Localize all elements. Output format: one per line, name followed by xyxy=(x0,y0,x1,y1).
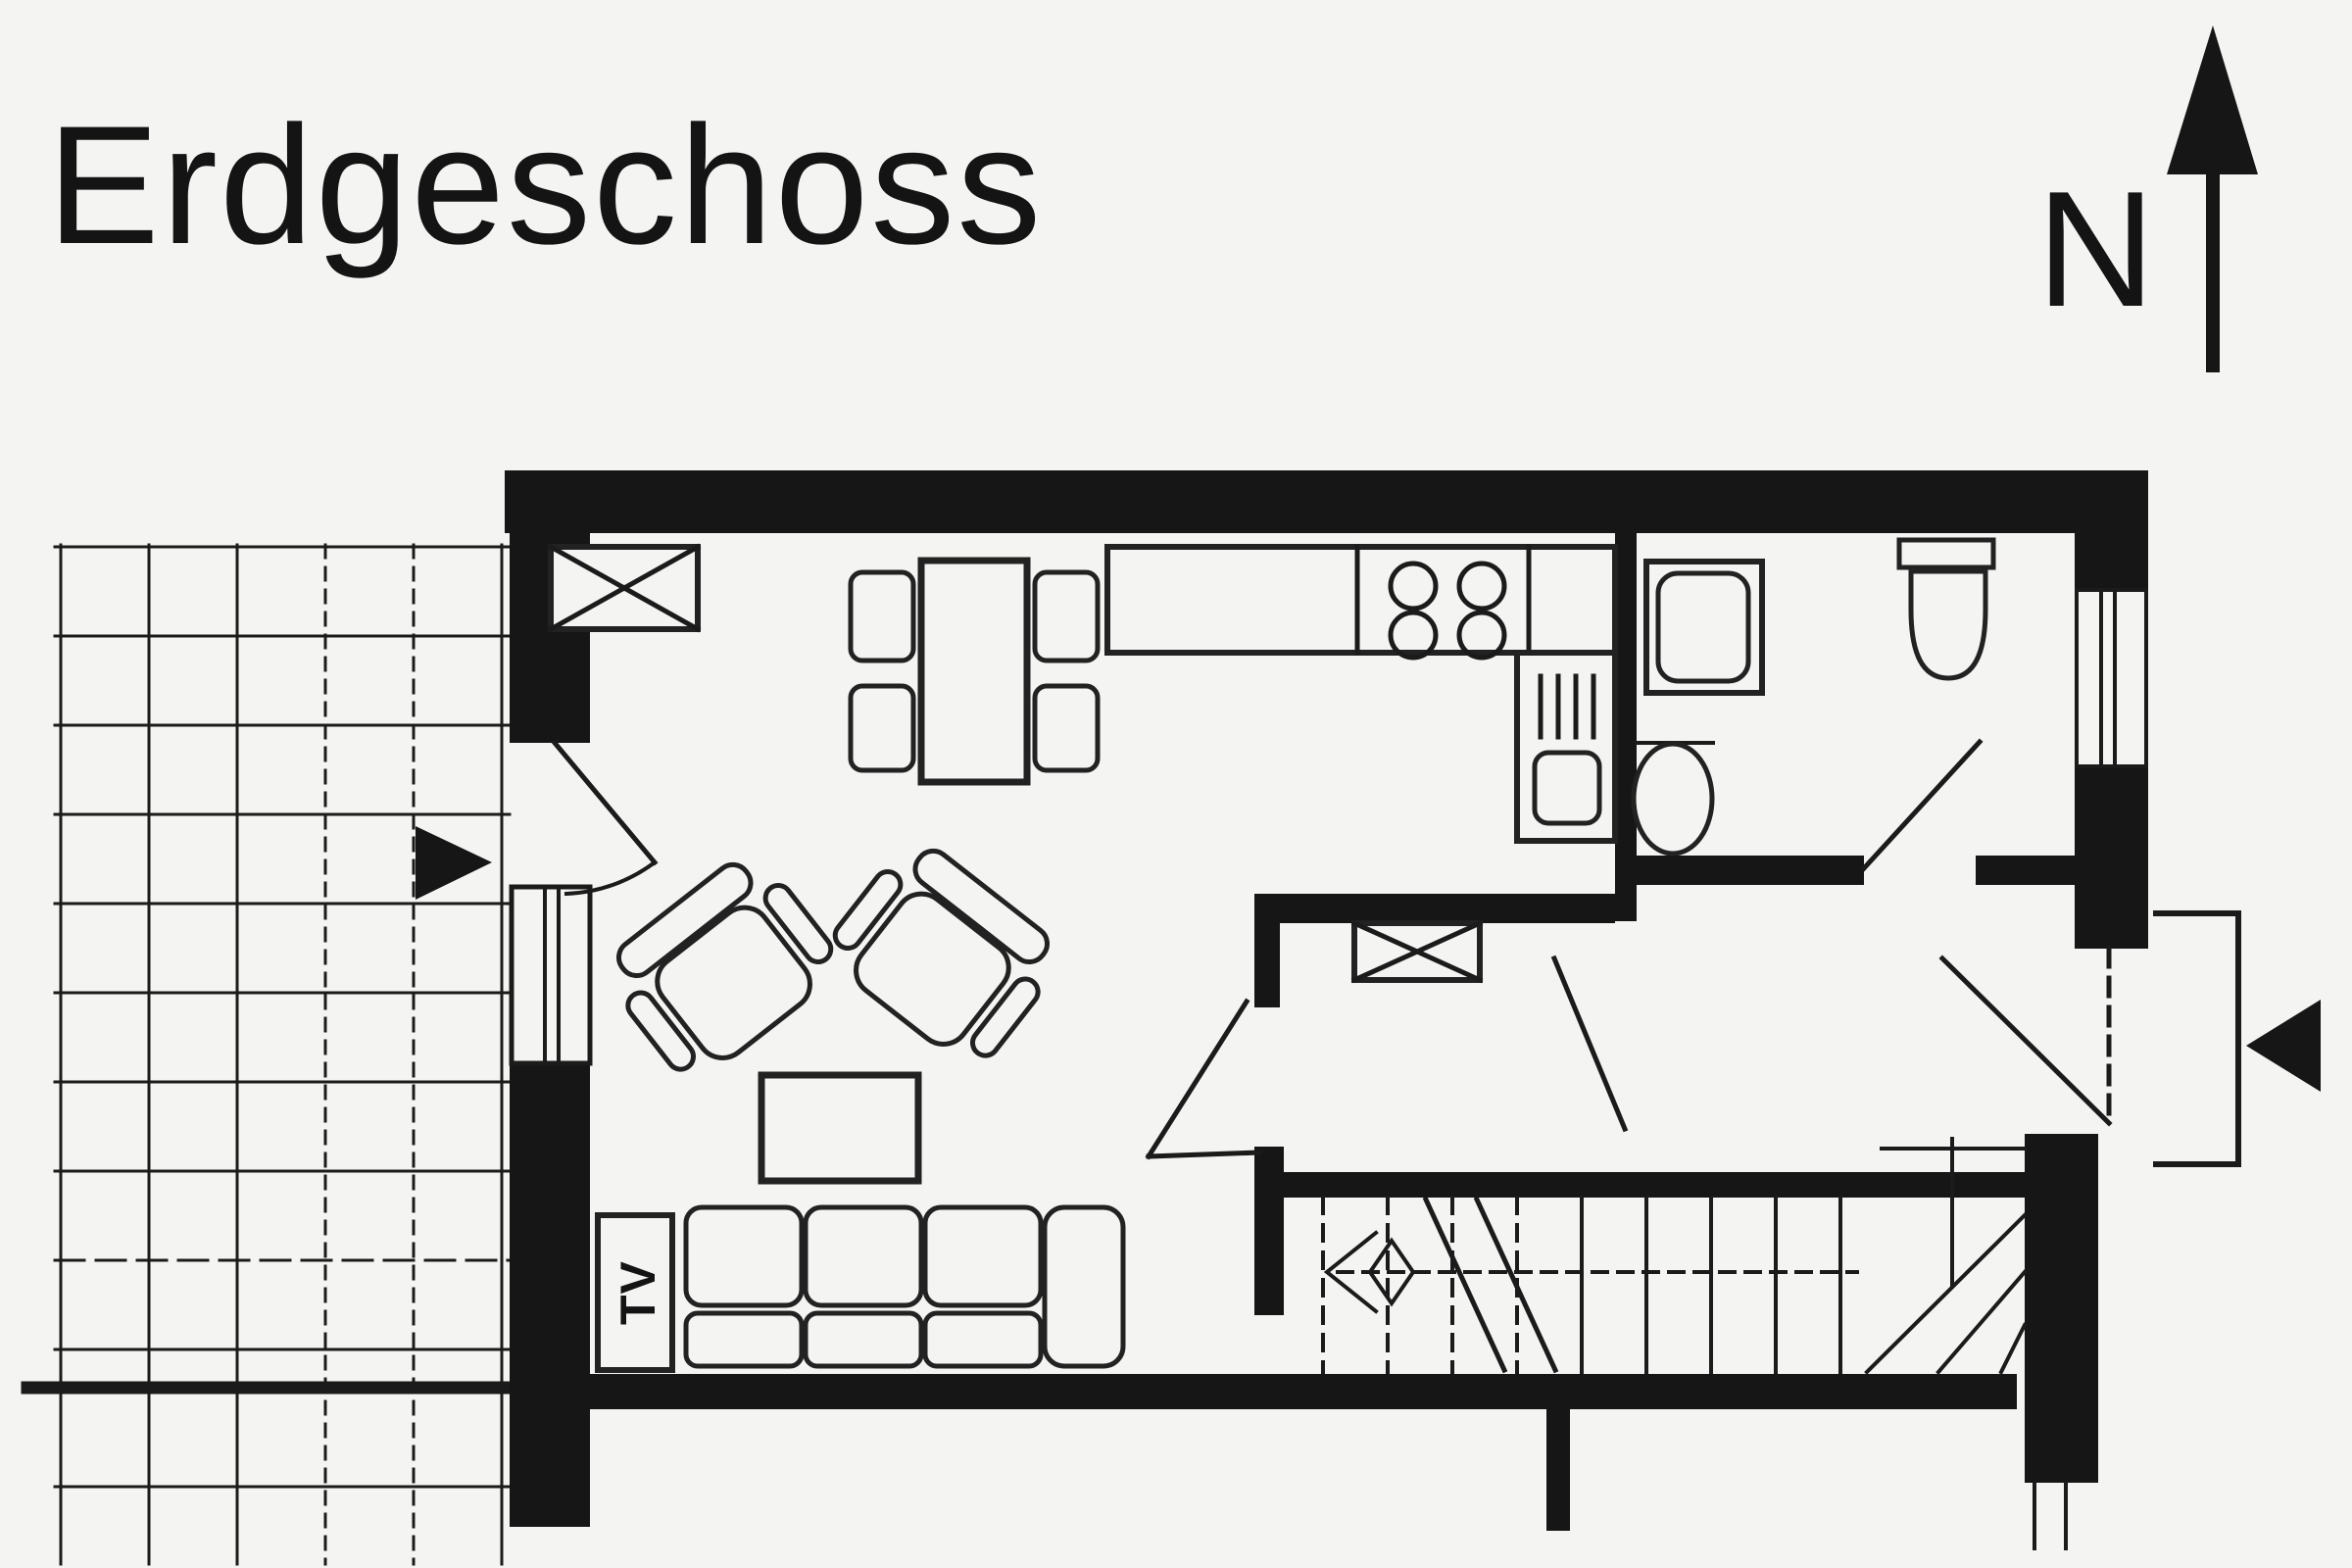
north-arrow-icon xyxy=(2206,165,2220,372)
entrance-arrow-icon xyxy=(2246,1000,2321,1092)
north-arrow-head xyxy=(2167,25,2258,174)
wall-north xyxy=(505,470,2148,533)
terrace xyxy=(27,545,524,1564)
wall-bath-south-left xyxy=(1637,856,1864,885)
north-compass: N xyxy=(2036,25,2258,372)
washbasin-symbol xyxy=(1634,743,1713,854)
terrace-entry-arrow-icon xyxy=(416,826,492,900)
stair-break-line xyxy=(1426,1200,1555,1370)
kitchen xyxy=(1107,547,1615,841)
sofa xyxy=(686,1207,1123,1366)
tv-cabinet: TV xyxy=(598,1215,672,1370)
kitchen-sink xyxy=(1535,753,1599,823)
wall-stair-stub xyxy=(1254,1147,1284,1315)
wall-hall-north xyxy=(1254,894,1615,923)
toilet-symbol xyxy=(1899,540,1993,678)
armchair xyxy=(595,845,848,1090)
wall-kitchen-bath-divider xyxy=(1615,533,1637,921)
hall xyxy=(1149,923,1625,1156)
dining-chair xyxy=(1035,572,1098,661)
circulation-arrow xyxy=(1149,958,1625,1156)
wall-bath-south-right xyxy=(1976,856,2075,885)
wall-east-above-window xyxy=(2075,533,2148,590)
coffee-table xyxy=(761,1075,918,1181)
porch-outline xyxy=(2156,913,2238,1164)
dining-chair xyxy=(1035,686,1098,770)
living-room: TV xyxy=(595,831,1123,1370)
kitchen-counter xyxy=(1107,547,1615,653)
terrace-window xyxy=(512,887,590,1063)
north-label: N xyxy=(2036,157,2155,341)
shower-symbol xyxy=(1646,562,1762,693)
floor-plan-page: Erdgeschoss N xyxy=(0,0,2352,1568)
wall-east-lower xyxy=(2025,1134,2098,1483)
front-door xyxy=(1942,949,2109,1123)
stair-treads xyxy=(1323,1198,1840,1372)
wall-south xyxy=(590,1374,2017,1409)
wall-hall-stub xyxy=(1254,894,1280,1007)
hall-wardrobe-symbol xyxy=(1354,923,1480,980)
closet-symbol xyxy=(551,547,698,629)
wall-stub-below-south xyxy=(1546,1409,1570,1531)
entrance-porch xyxy=(2156,913,2321,1164)
dining-chair xyxy=(851,686,913,770)
dining-chair xyxy=(851,572,913,661)
dining-table xyxy=(921,561,1027,782)
armchair xyxy=(818,831,1071,1076)
wall-west-lower xyxy=(510,1064,590,1527)
terrace-door xyxy=(555,743,655,894)
wall-stair-north xyxy=(1284,1172,2025,1198)
bathroom xyxy=(1634,540,1993,854)
wall-east-below-window xyxy=(2075,766,2148,949)
bathroom-door xyxy=(1864,742,1980,868)
dining-area xyxy=(551,547,1098,782)
floor-plan-drawing: Erdgeschoss N xyxy=(0,0,2352,1568)
terrace-tile-grid xyxy=(55,545,510,1564)
page-title: Erdgeschoss xyxy=(47,91,1043,279)
bathroom-window xyxy=(2077,590,2146,766)
tv-label: TV xyxy=(611,1260,665,1325)
